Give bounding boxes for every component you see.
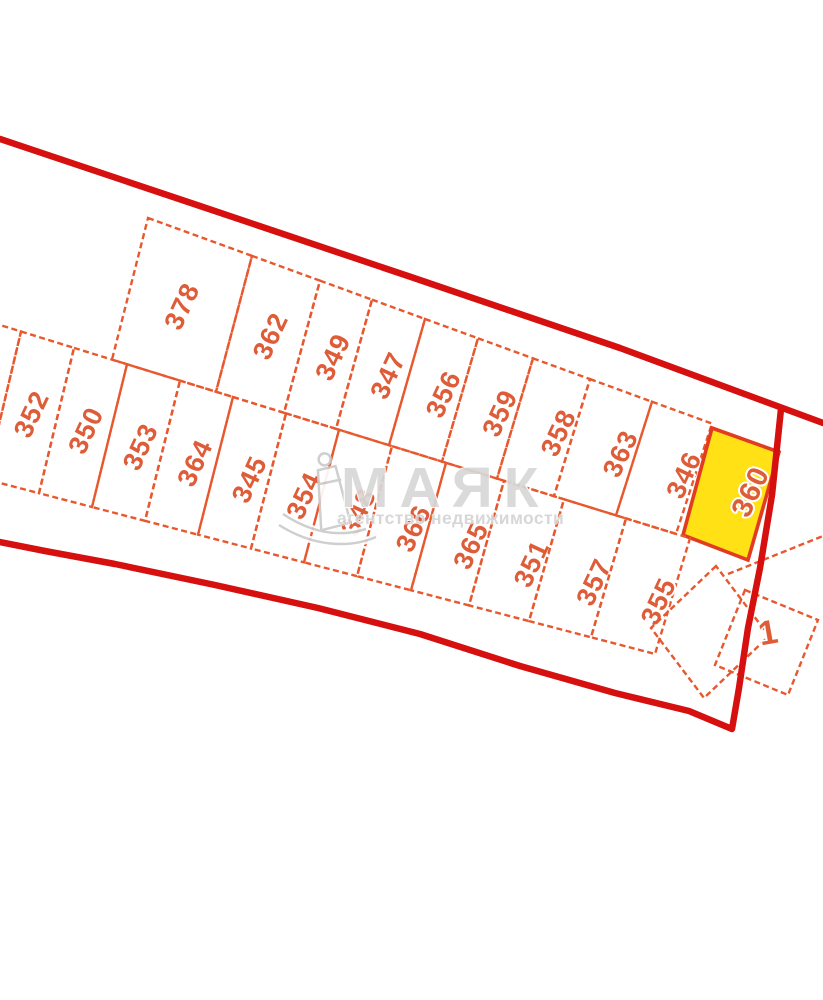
parcel-label-350: 350 (62, 402, 110, 458)
parcel-shape-unlabeled (0, 314, 21, 479)
parcel-label-362: 362 (247, 308, 295, 364)
parcel-label-358: 358 (535, 405, 583, 461)
cadastral-map[interactable]: 3783623493473563593583633463603523503533… (0, 0, 823, 1000)
parcel-label-351: 351 (508, 536, 556, 592)
parcel-label-345: 345 (226, 451, 274, 507)
parcel-label-357: 357 (570, 554, 618, 610)
parcel-label-347: 347 (364, 347, 412, 403)
parcel-label-352: 352 (8, 386, 56, 442)
map-svg: 3783623493473563593583633463603523503533… (0, 0, 823, 1000)
watermark-tagline-text: агентство недвижимости (337, 508, 564, 528)
parcel-label-378: 378 (158, 278, 206, 334)
detached-parcel-label-1: 1 (755, 613, 780, 654)
parcel-label-353: 353 (117, 419, 165, 475)
parcel-label-356: 356 (420, 366, 468, 422)
parcel-label-363: 363 (597, 426, 645, 482)
